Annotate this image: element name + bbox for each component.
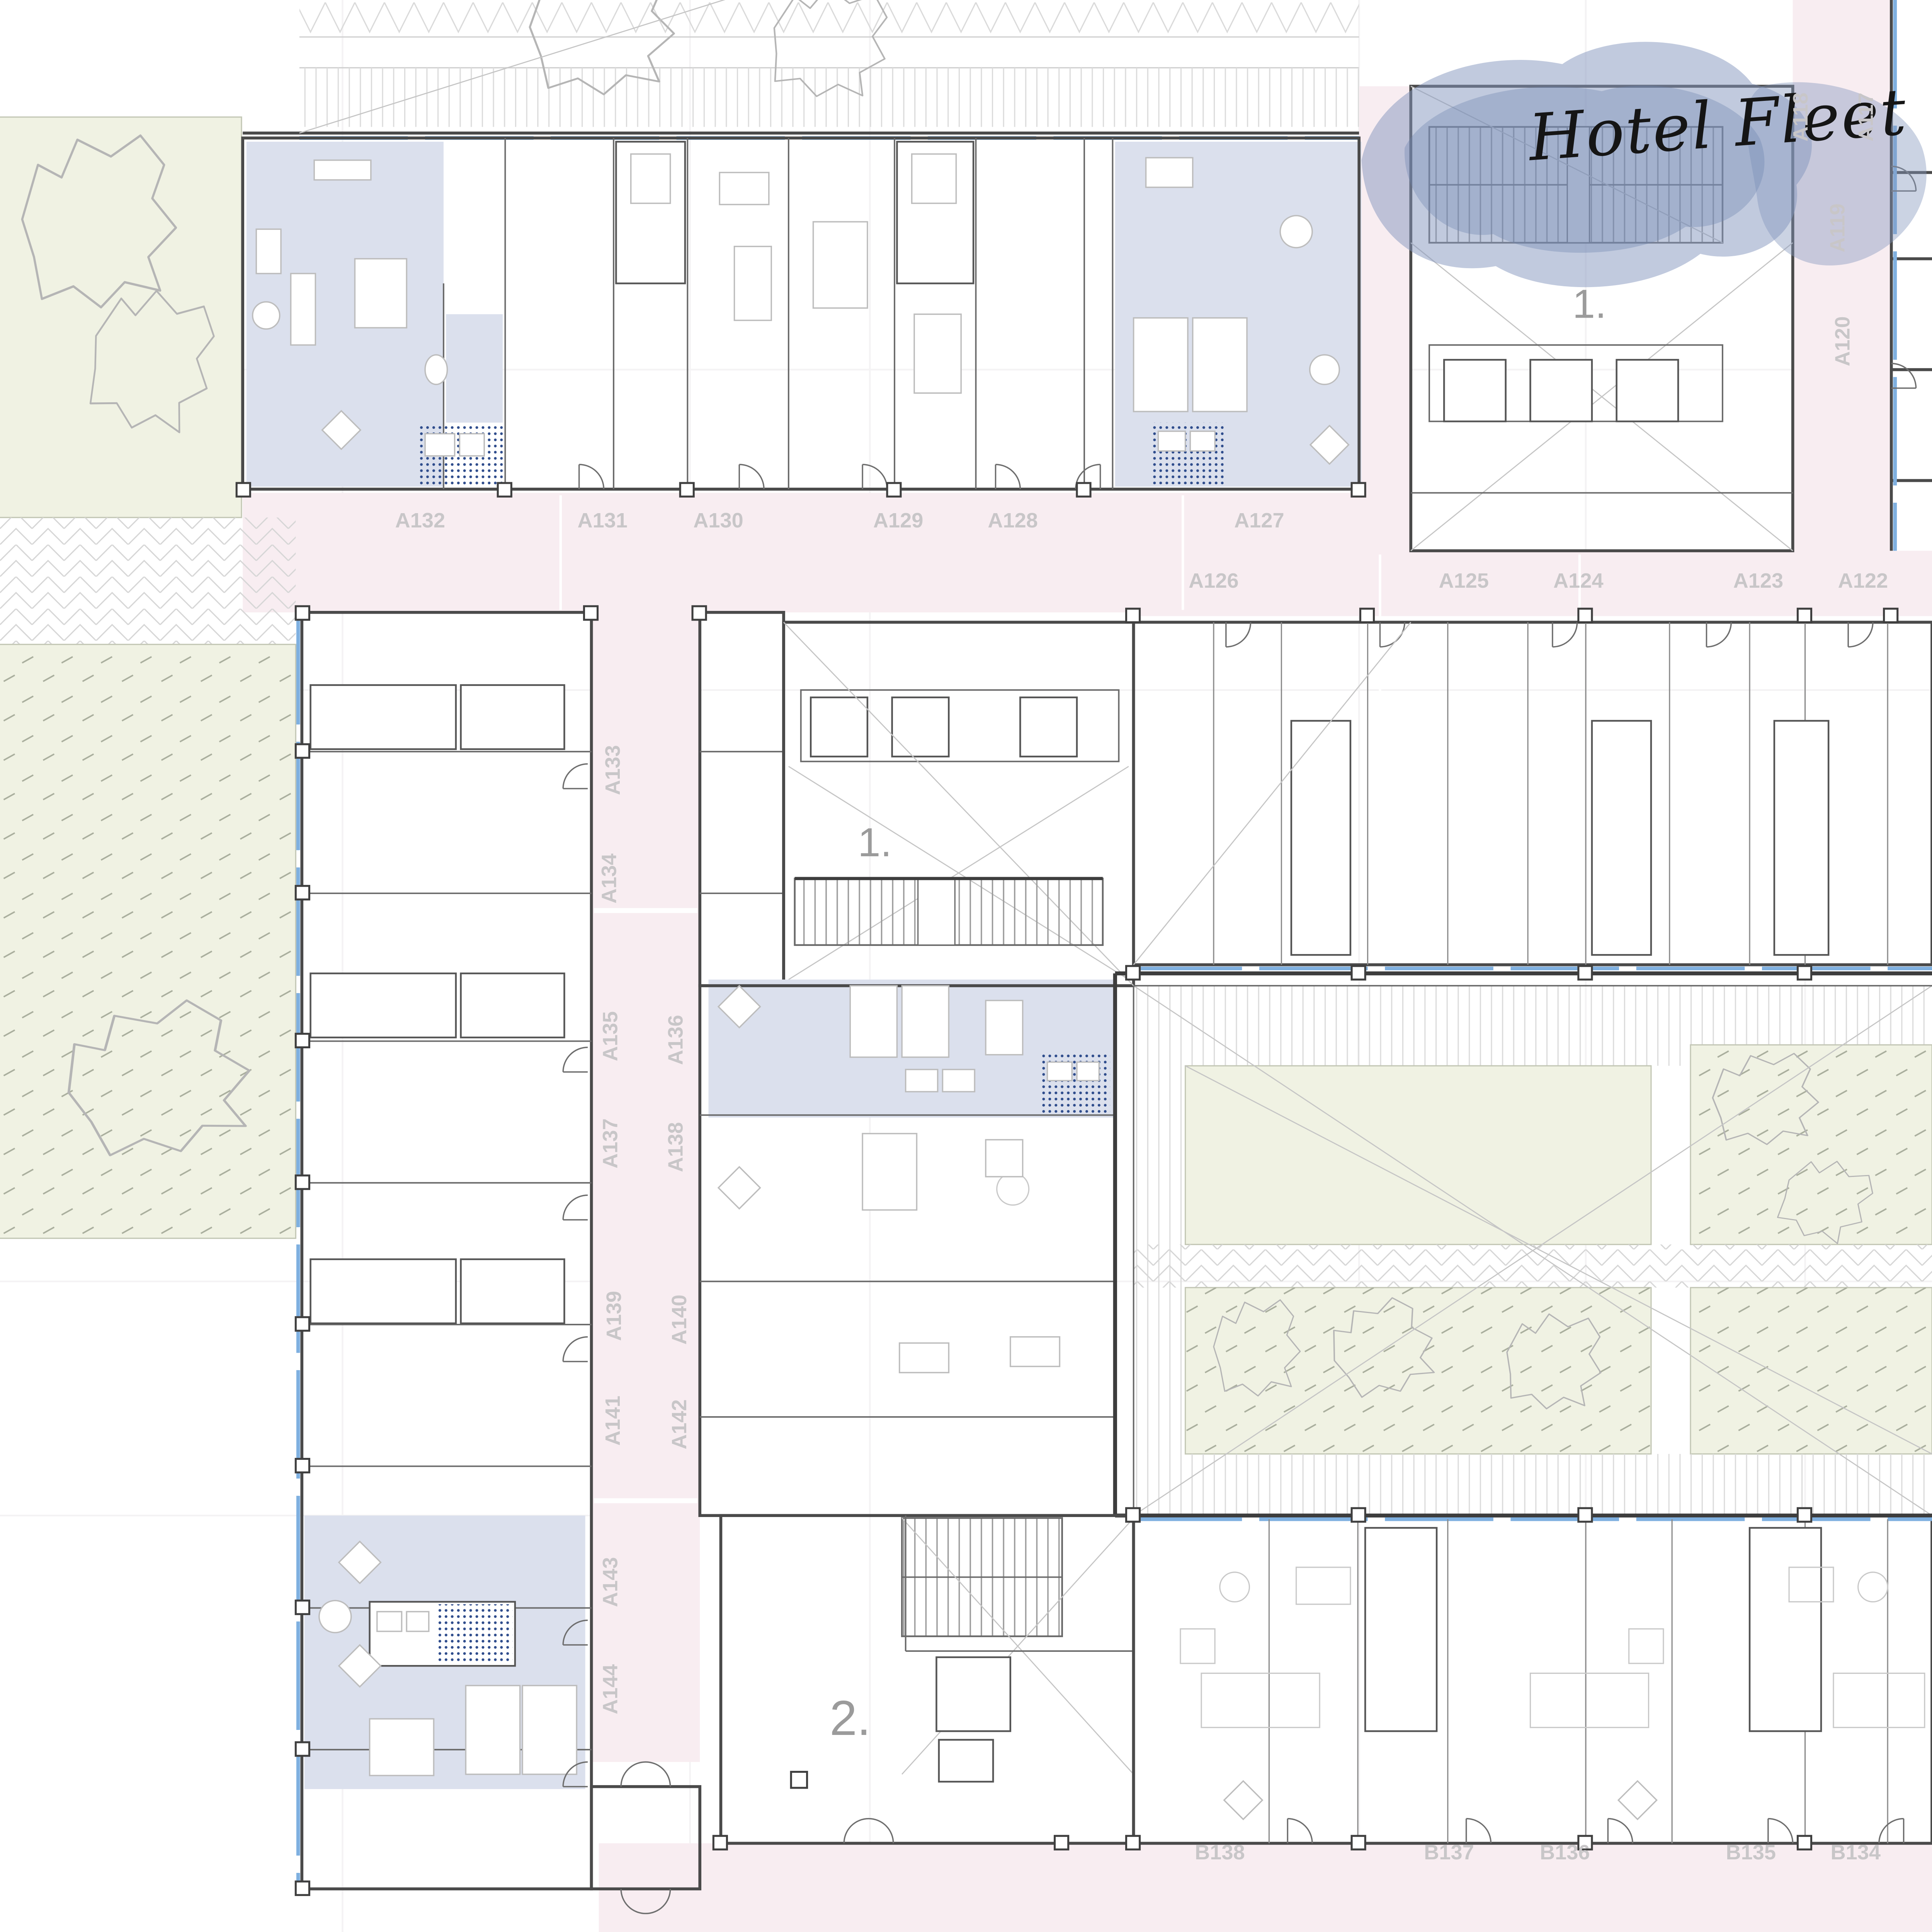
room-label-a128: A128 — [988, 509, 1038, 532]
corridor-top — [243, 493, 1932, 616]
room-label-a130: A130 — [693, 509, 743, 532]
room-label-a137: A137 — [599, 1118, 622, 1168]
room-label-a124: A124 — [1553, 569, 1604, 592]
room-label-b134: B134 — [1831, 1841, 1881, 1864]
room-label-a133: A133 — [601, 745, 624, 795]
floor-marker: 1. — [858, 820, 892, 865]
room-label-a140: A140 — [668, 1294, 691, 1345]
room-label-a132: A132 — [395, 509, 446, 532]
floor-marker: 2. — [830, 1691, 871, 1746]
room-label-a134: A134 — [597, 854, 621, 904]
terrace-top-building — [243, 0, 1359, 138]
room-label-a144: A144 — [599, 1664, 622, 1714]
room-label-a138: A138 — [664, 1122, 687, 1172]
block-lobby: 2. — [721, 1515, 1133, 1843]
planter — [1185, 1066, 1651, 1244]
door-arcs — [1226, 622, 1873, 647]
room-label-a143: A143 — [599, 1557, 622, 1607]
double-door — [844, 1819, 893, 1844]
room-label-a119: A119 — [1826, 204, 1849, 253]
room-label-a120: A120 — [1831, 316, 1854, 367]
room-label-a118: A118 — [1789, 93, 1812, 142]
room-label-a135: A135 — [599, 1011, 622, 1061]
room-label-a117: A117 — [1854, 93, 1878, 142]
elevator-bank — [1429, 345, 1723, 422]
staircase-icon — [902, 1518, 1062, 1636]
room-label-a127: A127 — [1234, 509, 1284, 532]
room-label-a126: A126 — [1189, 569, 1239, 592]
room-label-a125: A125 — [1439, 569, 1489, 592]
floor-plan-sheet: 1. — [0, 0, 1932, 1932]
room-label-b138: B138 — [1195, 1841, 1245, 1864]
block-b134-b138 — [1134, 1519, 1932, 1844]
room-label-a123: A123 — [1733, 569, 1784, 592]
block-a132-a127 — [243, 138, 1361, 489]
room-label-a122: A122 — [1838, 569, 1888, 592]
corridor-gap — [594, 908, 697, 913]
room-label-b137: B137 — [1424, 1841, 1474, 1864]
block-a126-a122-rooms — [1134, 622, 1932, 968]
room-label-b135: B135 — [1726, 1841, 1776, 1864]
block-atrium: 1. — [700, 612, 1133, 986]
courtyard — [1115, 973, 1932, 1515]
room-label-a129: A129 — [873, 509, 923, 532]
bathroom-tile — [1041, 1053, 1111, 1115]
corridor-gap — [594, 1498, 697, 1503]
room-label-a141: A141 — [601, 1396, 624, 1446]
floor-plan: 1. — [0, 0, 1932, 1932]
room-label-a142: A142 — [668, 1399, 691, 1449]
room-label-a136: A136 — [664, 1015, 687, 1065]
room-label-a139: A139 — [602, 1291, 626, 1341]
elevator-bank — [936, 1657, 1010, 1782]
block-a136-a142 — [700, 980, 1115, 1515]
elevator-bank — [801, 690, 1119, 762]
bathroom-tile — [419, 355, 1223, 486]
floor-marker: 1. — [1573, 282, 1607, 327]
staircase-icon — [795, 879, 1103, 945]
door-arcs — [579, 464, 1100, 489]
room-label-a131: A131 — [578, 509, 628, 532]
path-herringbone — [0, 517, 296, 644]
room-label-b136: B136 — [1540, 1841, 1590, 1864]
